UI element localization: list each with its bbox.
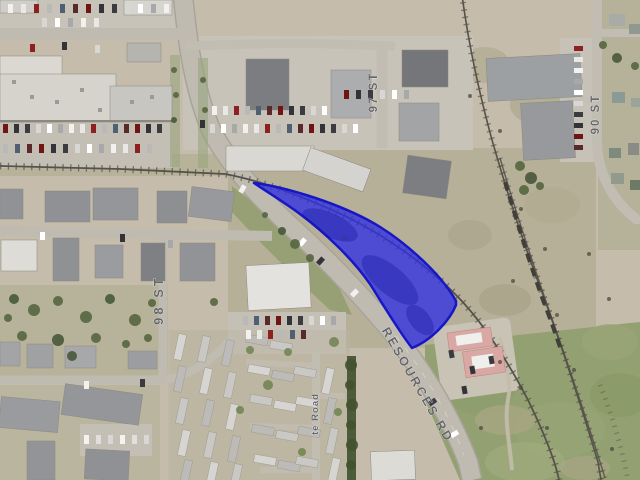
street-label-90-st: 90 ST <box>590 94 602 135</box>
street-label-park-road: te Road <box>310 393 321 435</box>
street-label-97-st: 97 ST <box>368 72 380 113</box>
satellite-map: 98 ST 97 ST 90 ST RESOURCES RD te Road <box>0 0 640 480</box>
street-label-98-st: 98 ST <box>151 275 166 325</box>
map-viewport[interactable]: 98 ST 97 ST 90 ST RESOURCES RD te Road <box>0 0 640 480</box>
